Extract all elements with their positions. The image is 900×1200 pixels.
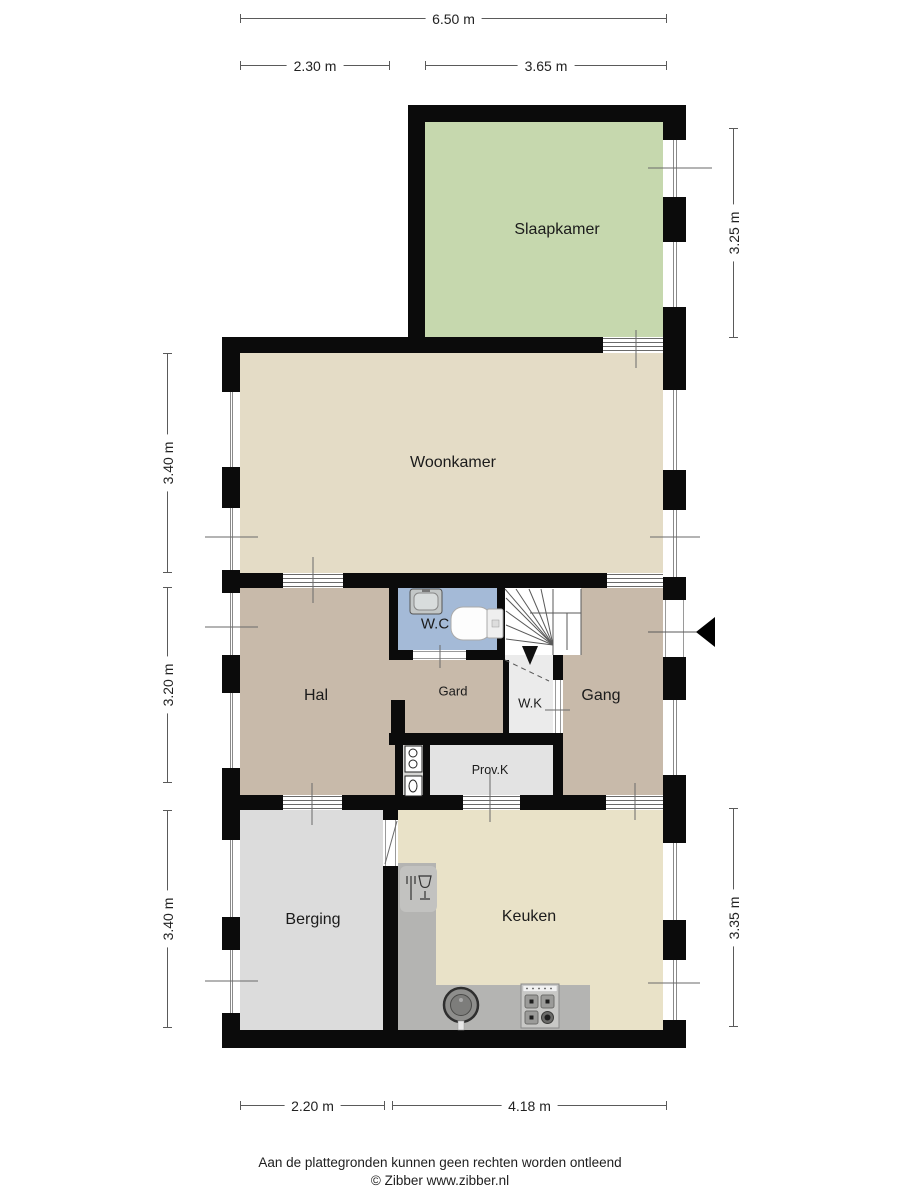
wall (222, 1030, 686, 1048)
wall (423, 738, 430, 798)
room-label-keuken: Keuken (502, 908, 556, 926)
wall (503, 660, 509, 738)
window (222, 593, 240, 655)
room-label-hal: Hal (304, 687, 328, 705)
dimension-left-upper: 3.40 m (167, 353, 168, 573)
window (222, 392, 240, 467)
kitchen-counter-horizontal (398, 985, 590, 1030)
dimension-bottom-left: 2.20 m (240, 1105, 385, 1106)
window (663, 700, 686, 775)
wall (553, 655, 563, 681)
dimension-top-left: 2.30 m (240, 65, 390, 66)
wall (408, 105, 686, 122)
dimension-right-upper: 3.25 m (733, 128, 734, 338)
window (663, 140, 686, 197)
wc-door (413, 650, 466, 660)
meter-cupboard (403, 742, 423, 798)
room-label-woonkamer: Woonkamer (410, 454, 496, 472)
wall (553, 733, 563, 795)
room-label-wk: W.K (518, 696, 542, 711)
dimension-left-middle: 3.20 m (167, 587, 168, 783)
berging-door (383, 820, 398, 866)
window (663, 510, 686, 577)
dishwasher-panel (400, 866, 437, 912)
stairs-area (505, 588, 581, 655)
interior-window (463, 795, 520, 810)
wall (395, 738, 403, 800)
room-label-berging: Berging (285, 911, 340, 929)
dimension-left-lower: 3.40 m (167, 810, 168, 1028)
wall (383, 866, 398, 1030)
wall (383, 810, 398, 820)
dimension-right-lower: 3.35 m (733, 808, 734, 1027)
interior-window (603, 337, 663, 353)
interior-window (607, 573, 663, 588)
room-label-gang: Gang (581, 687, 620, 705)
room-wk (505, 648, 553, 738)
wall (389, 650, 414, 660)
footer-copyright: © Zibber www.zibber.nl (371, 1173, 509, 1188)
interior-window (283, 795, 342, 810)
room-label-provk: Prov.K (472, 763, 509, 777)
floor-plan: Slaapkamer Woonkamer Hal W.C Gard W.K Ga… (0, 0, 900, 1200)
window (663, 843, 686, 920)
footer-disclaimer: Aan de plattegronden kunnen geen rechten… (258, 1155, 621, 1170)
window (222, 693, 240, 768)
window (663, 390, 686, 470)
wall (408, 105, 425, 337)
window (222, 840, 240, 917)
room-label-wc: W.C (421, 616, 449, 633)
wall (389, 582, 398, 660)
room-label-gard: Gard (439, 684, 468, 699)
window (663, 960, 686, 1020)
wall (466, 650, 497, 660)
dimension-top-total: 6.50 m (240, 18, 667, 19)
interior-window (283, 573, 343, 588)
wall (389, 733, 559, 745)
wk-door (553, 680, 563, 733)
room-label-slaapkamer: Slaapkamer (514, 221, 599, 239)
dimension-top-right: 3.65 m (425, 65, 667, 66)
window (222, 950, 240, 1013)
front-door (663, 600, 686, 657)
interior-window (606, 795, 663, 810)
window (222, 508, 240, 570)
dimension-bottom-right: 4.18 m (392, 1105, 667, 1106)
window (663, 242, 686, 307)
wall (497, 582, 505, 660)
wall (222, 337, 663, 353)
